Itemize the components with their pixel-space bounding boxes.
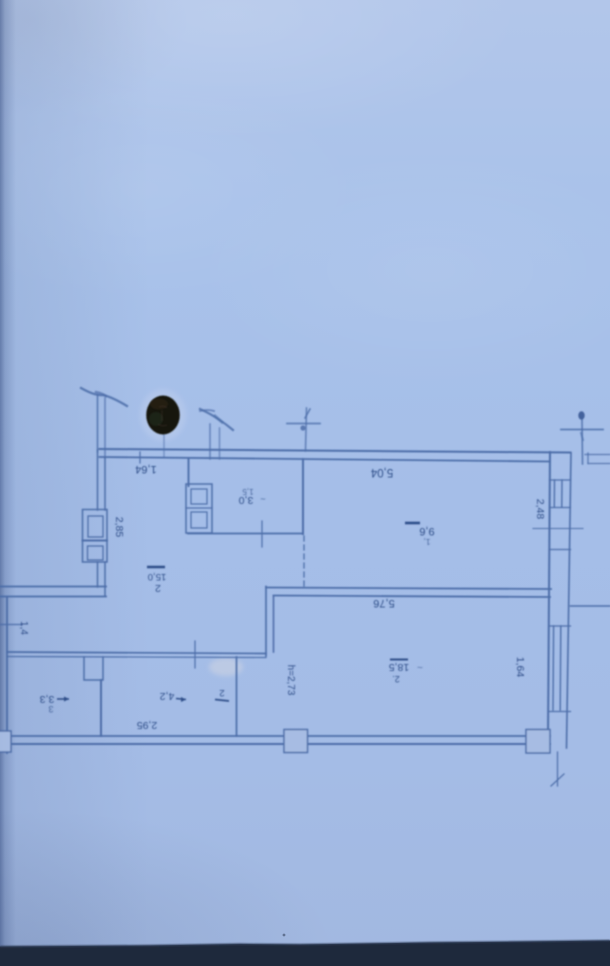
- svg-text:5,04: 5,04: [370, 466, 393, 478]
- svg-text:1,64: 1,64: [135, 463, 156, 475]
- svg-text:1,: 1,: [423, 537, 430, 547]
- svg-text:1,64: 1,64: [514, 657, 526, 678]
- svg-text:2,95: 2,95: [137, 719, 158, 731]
- svg-text:~: ~: [260, 494, 265, 504]
- svg-text:2: 2: [155, 582, 161, 594]
- svg-text:15,0: 15,0: [148, 571, 167, 582]
- svg-text:3,3: 3,3: [40, 693, 55, 705]
- svg-text:~: ~: [417, 661, 423, 672]
- svg-text:5,76: 5,76: [373, 597, 394, 609]
- svg-text:3: 3: [48, 704, 53, 714]
- svg-text:2,48: 2,48: [534, 499, 546, 520]
- svg-text:4,2: 4,2: [160, 690, 175, 702]
- svg-text:1,5: 1,5: [242, 487, 254, 496]
- svg-text:9,6: 9,6: [419, 525, 434, 537]
- svg-text:18,5: 18,5: [389, 661, 410, 673]
- svg-text:2: 2: [219, 687, 224, 698]
- svg-text:2,85: 2,85: [113, 517, 125, 538]
- svg-text:h=2,73: h=2,73: [285, 665, 296, 696]
- svg-text:1,4: 1,4: [18, 621, 29, 635]
- svg-text:2.: 2.: [392, 674, 400, 684]
